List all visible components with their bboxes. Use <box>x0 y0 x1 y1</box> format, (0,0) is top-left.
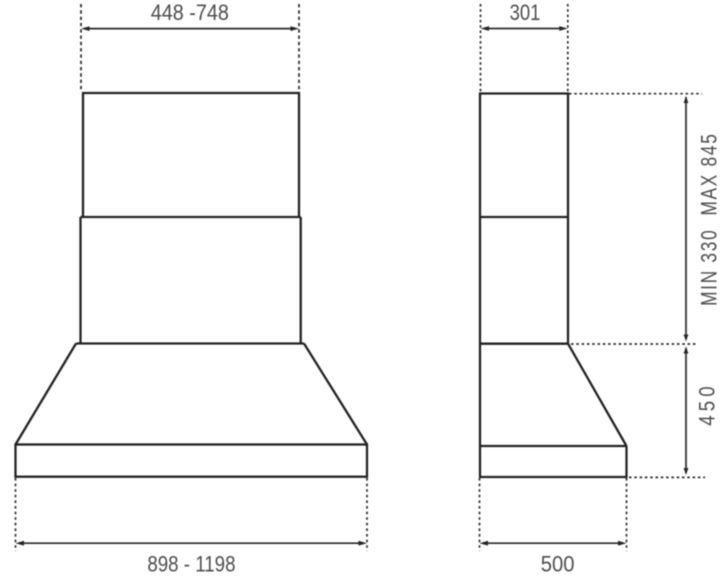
svg-text:500: 500 <box>541 553 575 577</box>
svg-text:448 -748: 448 -748 <box>151 1 229 25</box>
svg-text:301: 301 <box>510 2 541 26</box>
svg-text:MIN 330 MAX 845: MIN 330 MAX 845 <box>698 132 722 305</box>
svg-text:898 - 1198: 898 - 1198 <box>147 553 235 577</box>
svg-text:450: 450 <box>696 382 720 425</box>
